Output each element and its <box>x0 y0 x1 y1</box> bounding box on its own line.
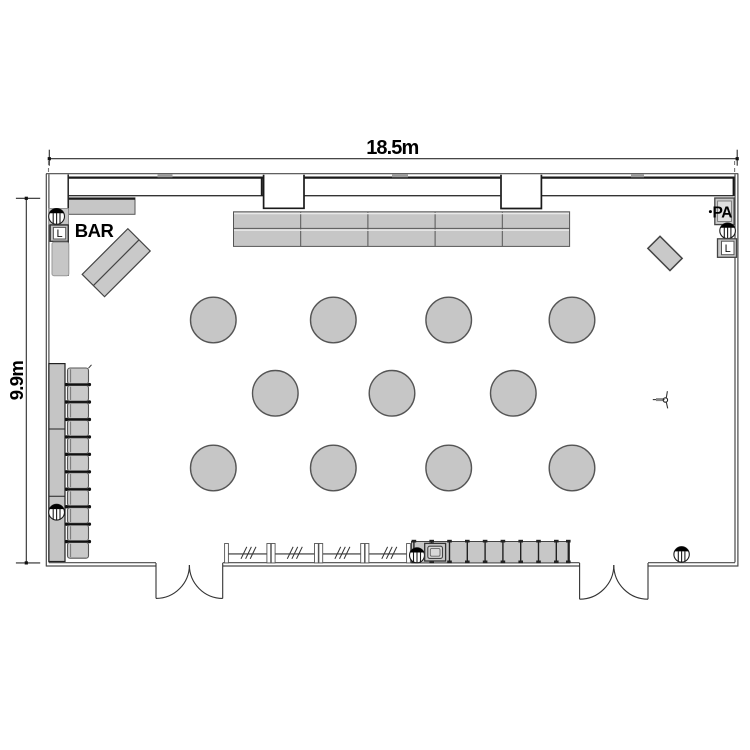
svg-text:BAR: BAR <box>75 220 114 241</box>
svg-text:PA: PA <box>713 205 733 222</box>
svg-text:9.9m: 9.9m <box>6 361 27 401</box>
svg-text:18.5m: 18.5m <box>366 137 418 159</box>
svg-text:L: L <box>725 243 731 255</box>
svg-text:L: L <box>57 228 63 240</box>
